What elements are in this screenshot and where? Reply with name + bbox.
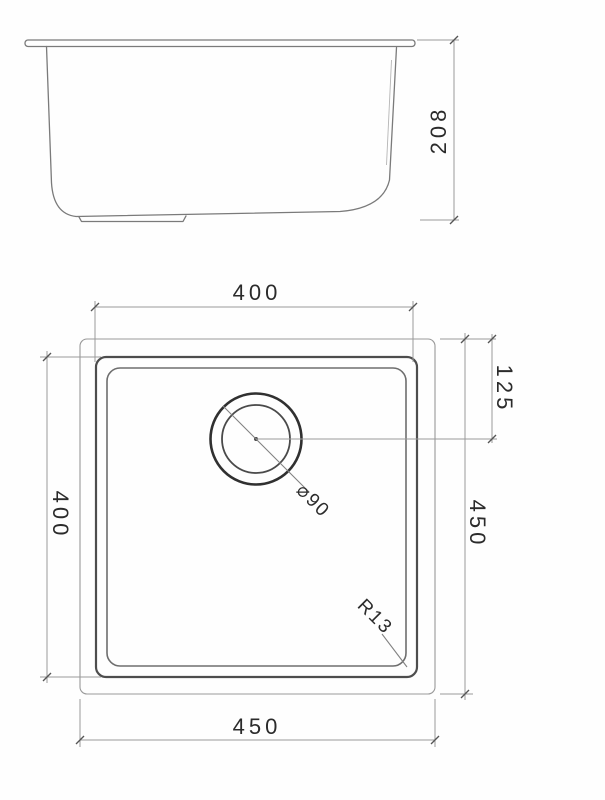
dim-label-outer-height: 450 [465, 500, 490, 549]
sink-technical-drawing-page: 208 ⌀90 400 [0, 0, 605, 800]
dim-label-height: 208 [426, 106, 451, 155]
sink-body-profile [47, 47, 397, 217]
dim-top-400: 400 [91, 280, 417, 362]
dim-left-400: 400 [40, 351, 101, 683]
dim-label-inner-height: 400 [48, 491, 73, 540]
dim-drain-offset-125: 125 [488, 334, 517, 443]
dim-height-208: 208 [417, 36, 459, 224]
dim-bottom-450: 450 [76, 699, 439, 747]
plan-view: ⌀90 400 400 450 [40, 280, 517, 747]
dim-label-drain-offset: 125 [492, 365, 517, 414]
dim-right-450: 450 [440, 333, 496, 700]
drain: ⌀90 [211, 394, 334, 523]
sink-rim-flange [25, 40, 415, 47]
technical-drawing-canvas: 208 ⌀90 400 [0, 0, 605, 800]
dim-label-outer-width: 450 [233, 714, 282, 739]
dim-label-inner-width: 400 [233, 280, 282, 305]
side-elevation-view: 208 [25, 36, 459, 224]
corner-radius-label: R13 [353, 595, 397, 639]
radius-leader-line [382, 634, 407, 667]
drain-diameter-label: ⌀90 [292, 480, 334, 522]
corner-radius-callout: R13 [353, 595, 407, 667]
bowl-bottom-edge [107, 368, 406, 666]
